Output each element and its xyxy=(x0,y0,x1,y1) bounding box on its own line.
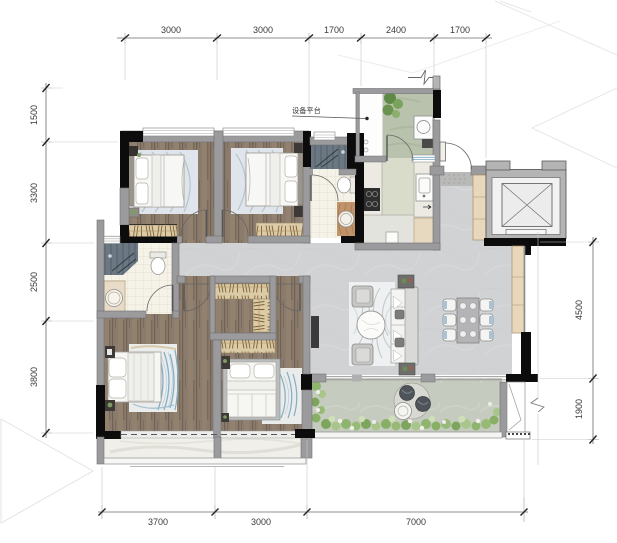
svg-text:设备平台: 设备平台 xyxy=(292,106,321,115)
svg-text:3700: 3700 xyxy=(148,517,168,527)
svg-text:1700: 1700 xyxy=(324,25,344,35)
svg-text:3800: 3800 xyxy=(29,367,39,387)
svg-text:1700: 1700 xyxy=(450,25,470,35)
svg-text:3300: 3300 xyxy=(29,183,39,203)
svg-text:3000: 3000 xyxy=(161,25,181,35)
svg-text:3000: 3000 xyxy=(251,517,271,527)
svg-text:1900: 1900 xyxy=(574,399,584,419)
svg-text:7000: 7000 xyxy=(406,517,426,527)
svg-text:2500: 2500 xyxy=(29,272,39,292)
svg-text:3000: 3000 xyxy=(253,25,273,35)
svg-text:4500: 4500 xyxy=(574,300,584,320)
svg-text:2400: 2400 xyxy=(386,25,406,35)
svg-text:1500: 1500 xyxy=(29,105,39,125)
